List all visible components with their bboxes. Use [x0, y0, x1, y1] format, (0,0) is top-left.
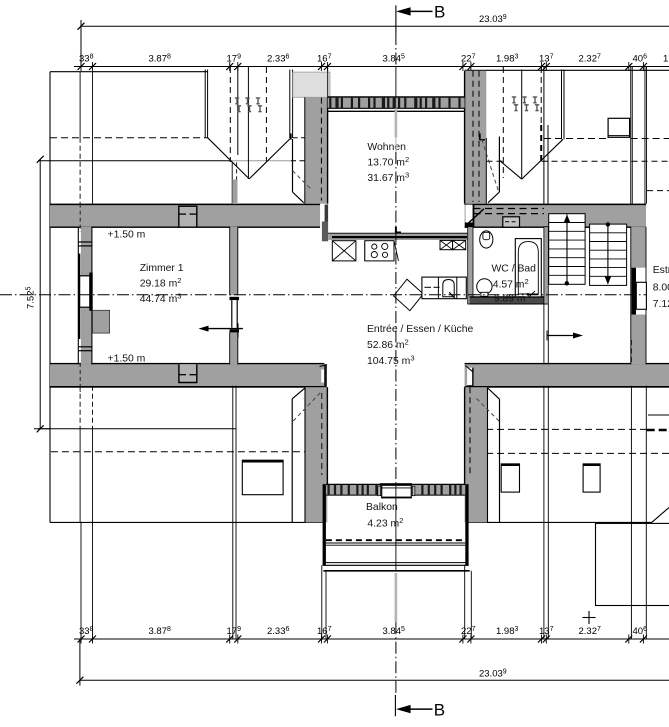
svg-text:Estrich: Estrich	[653, 265, 669, 276]
svg-text:Entrée / Essen / Küche: Entrée / Essen / Küche	[367, 324, 473, 335]
svg-text:13.70 m2: 13.70 m2	[367, 155, 409, 169]
svg-text:Zimmer 1: Zimmer 1	[140, 263, 184, 274]
svg-text:104.75 m3: 104.75 m3	[367, 354, 415, 368]
svg-text:9.89 m3: 9.89 m3	[494, 291, 530, 305]
svg-text:1.5: 1.5	[663, 54, 669, 65]
svg-text:+1.50 m: +1.50 m	[108, 354, 146, 365]
svg-text:+1.50 m: +1.50 m	[108, 230, 146, 241]
svg-text:B: B	[434, 701, 445, 720]
svg-text:4.57 m2: 4.57 m2	[493, 277, 529, 291]
svg-text:WC / Bad: WC / Bad	[492, 264, 537, 275]
svg-text:31.67 m3: 31.67 m3	[367, 171, 409, 185]
svg-text:B: B	[434, 3, 445, 22]
svg-text:Wohnen: Wohnen	[367, 142, 406, 153]
svg-text:23.039: 23.039	[479, 14, 507, 25]
svg-text:52.86 m2: 52.86 m2	[367, 338, 409, 352]
svg-text:23.039: 23.039	[479, 669, 507, 680]
svg-text:8.00 m2: 8.00 m2	[653, 280, 669, 294]
svg-text:44.74 m3: 44.74 m3	[140, 292, 182, 306]
svg-text:7.12 m3: 7.12 m3	[653, 297, 669, 311]
svg-text:4.23 m2: 4.23 m2	[367, 516, 403, 530]
svg-text:Balkon: Balkon	[366, 502, 398, 513]
svg-text:29.18 m2: 29.18 m2	[140, 276, 182, 290]
